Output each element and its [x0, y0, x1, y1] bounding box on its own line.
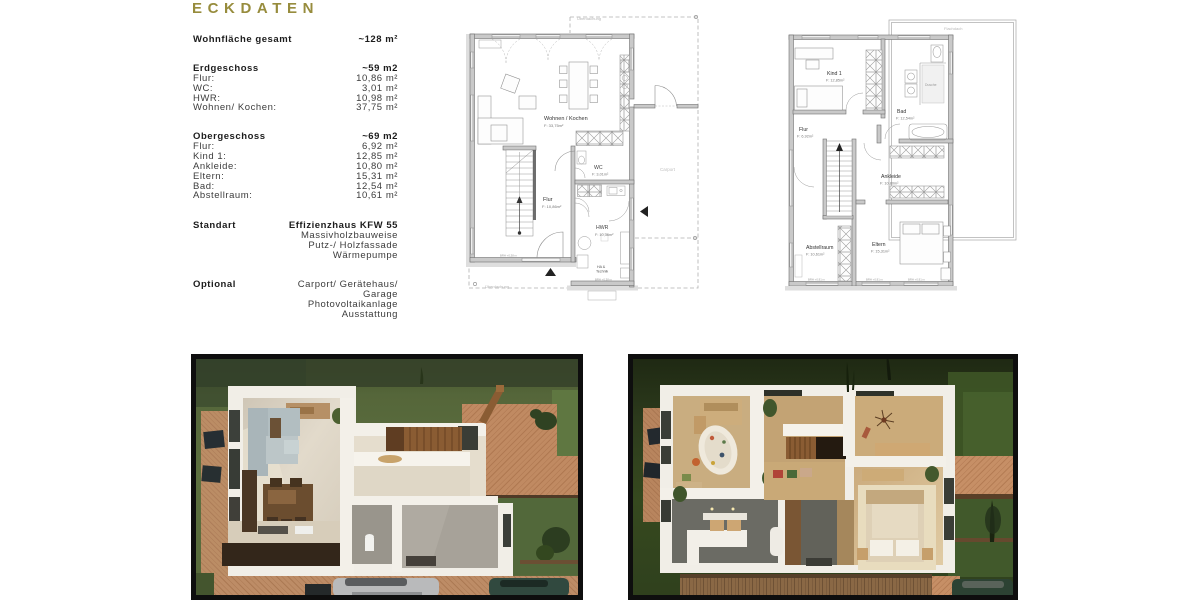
svg-text:Überdachung: Überdachung	[485, 284, 509, 289]
svg-text:Flur: Flur	[543, 197, 553, 203]
svg-text:BRH +0,38 m: BRH +0,38 m	[595, 278, 613, 282]
svg-text:F: 12,85m²: F: 12,85m²	[826, 79, 845, 83]
svg-text:F: 15,31m²: F: 15,31m²	[871, 250, 890, 254]
svg-text:Flachdach: Flachdach	[944, 26, 962, 31]
svg-text:Kind 1: Kind 1	[827, 71, 842, 77]
svg-text:Eltern: Eltern	[872, 242, 886, 248]
svg-text:BRH +0,91 m: BRH +0,91 m	[808, 278, 826, 282]
svg-text:HWR: HWR	[596, 225, 609, 231]
svg-text:Flur: Flur	[799, 127, 808, 133]
svg-text:BRH +0,91 m: BRH +0,91 m	[866, 278, 884, 282]
svg-text:Technik: Technik	[596, 270, 608, 274]
svg-text:Carport: Carport	[660, 167, 676, 172]
svg-text:Abstellraum: Abstellraum	[806, 245, 833, 251]
svg-text:BRH +0,38 m: BRH +0,38 m	[500, 254, 518, 258]
svg-text:F: 3,01m²: F: 3,01m²	[592, 173, 609, 177]
svg-text:Bad: Bad	[897, 109, 906, 115]
svg-text:F: 10,36m²: F: 10,36m²	[595, 233, 614, 237]
svg-text:Überdachung: Überdachung	[577, 16, 601, 21]
svg-text:F: 10,61m²: F: 10,61m²	[806, 253, 825, 257]
svg-text:F: 12,54m²: F: 12,54m²	[896, 117, 915, 121]
svg-text:Ankleide: Ankleide	[881, 174, 901, 180]
svg-text:F: 10,80m²: F: 10,80m²	[880, 182, 899, 186]
svg-text:Wohnen / Kochen: Wohnen / Kochen	[544, 116, 588, 122]
svg-text:F: 6,92m²: F: 6,92m²	[797, 135, 814, 139]
svg-text:F: 33,75m²: F: 33,75m²	[544, 123, 564, 128]
svg-text:BRH +0,91 m: BRH +0,91 m	[908, 278, 926, 282]
svg-text:HA &: HA &	[597, 265, 606, 269]
svg-text:WC: WC	[594, 165, 603, 171]
svg-text:F: 10,86m²: F: 10,86m²	[542, 204, 562, 209]
svg-text:Dusche: Dusche	[925, 83, 937, 87]
